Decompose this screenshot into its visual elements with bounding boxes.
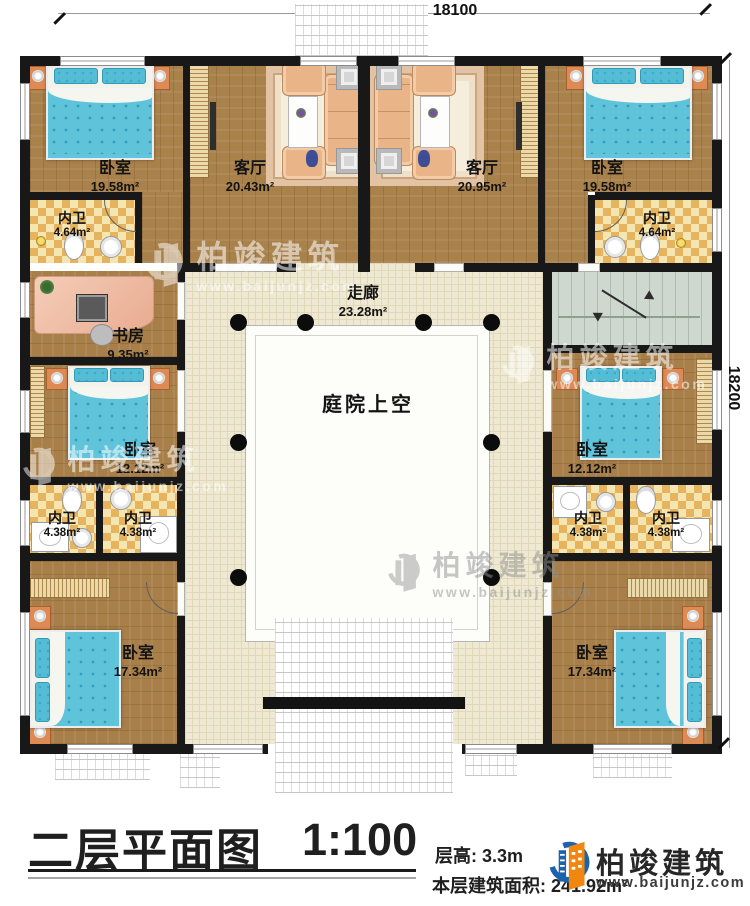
side-table (376, 148, 402, 174)
watermark: 柏竣建筑www.baijunjz.com (497, 336, 707, 392)
pillow (640, 68, 684, 84)
label-bath-left-1: 内卫4.38m² (44, 510, 80, 540)
sink (596, 492, 616, 512)
brand-website: www.baijunjz.com (596, 875, 745, 891)
pillow (102, 68, 146, 84)
window (712, 370, 722, 430)
coffee-table (420, 96, 450, 148)
wall-corridor-left-b (177, 320, 185, 370)
window (583, 56, 661, 66)
window (593, 744, 672, 754)
wall-rbath-divider (623, 485, 630, 553)
column (415, 314, 432, 331)
label-bedroom-bottom-left: 卧室17.34m² (114, 645, 162, 679)
wardrobe (30, 578, 110, 598)
wall-tr-bedroom-left (538, 62, 545, 272)
label-bedroom-top-left: 卧室19.58m² (91, 160, 139, 194)
wall-study-bottom (27, 357, 177, 365)
bed-top-left (46, 66, 154, 160)
tv-left (210, 102, 216, 150)
label-living-left: 客厅20.43m² (226, 160, 274, 194)
pillow (35, 682, 50, 722)
label-bath-right-1: 内卫4.38m² (570, 510, 606, 540)
title-underline-1 (28, 869, 416, 872)
nightstand (28, 66, 48, 90)
window (20, 390, 30, 433)
coffee-table (288, 96, 318, 148)
nightstand (148, 368, 170, 390)
label-bath-left-2: 内卫4.38m² (120, 510, 156, 540)
roof-hatch-bottom-left (55, 754, 150, 780)
bed-bottom-right (614, 630, 706, 728)
label-bedroom-mid-right: 卧室12.12m² (568, 442, 616, 476)
watermark-logo-icon (497, 340, 535, 388)
column (297, 314, 314, 331)
window (20, 500, 30, 546)
pillow (74, 368, 108, 382)
window (20, 282, 30, 318)
pillow (110, 368, 144, 382)
table-flowers (296, 108, 306, 118)
bed-bottom-left (29, 630, 121, 728)
stair-handrail (558, 316, 700, 318)
wall-rbed-bottom (551, 477, 712, 485)
nightstand (29, 606, 51, 630)
door-threshold (177, 582, 185, 616)
wall-stair-top-2 (600, 263, 712, 272)
wall-lbath-bottom (27, 553, 177, 561)
wardrobe (627, 578, 709, 598)
computer-monitor (76, 294, 108, 322)
label-bedroom-bottom-right: 卧室17.34m² (568, 645, 616, 679)
column (230, 434, 247, 451)
label-living-right: 客厅20.95m² (458, 160, 506, 194)
wall-living-divider (358, 56, 370, 272)
nightstand (682, 606, 704, 630)
dimension-right-value: 18200 (724, 358, 742, 418)
title-underline-2 (28, 877, 416, 879)
wardrobe (30, 366, 45, 438)
label-courtyard: 庭院上空 (322, 394, 414, 418)
watermark-logo-icon (140, 237, 184, 291)
sink (100, 236, 122, 258)
label-bedroom-top-right: 卧室19.58m² (583, 160, 631, 194)
table-flowers (428, 108, 438, 118)
plant (40, 280, 54, 294)
window (20, 83, 30, 140)
sink (604, 236, 626, 258)
wall-corridor-top-4 (464, 263, 545, 272)
watermark: 柏竣建筑www.baijunjz.com (383, 544, 593, 600)
nightstand (46, 368, 68, 390)
wall-tr-bath-left (588, 195, 595, 263)
bed-sheet-fold (666, 632, 680, 726)
label-bath-top-right: 内卫4.64m² (639, 210, 675, 240)
sofa-single (412, 62, 456, 96)
pillow (35, 638, 50, 678)
floor-lamp (676, 238, 686, 248)
person-figure (418, 150, 430, 167)
terrace-railing (263, 697, 465, 709)
label-bath-top-left: 内卫4.64m² (54, 210, 90, 240)
window (712, 612, 722, 716)
window (193, 744, 263, 754)
window (712, 83, 722, 140)
person-figure (306, 150, 318, 167)
door-threshold (177, 370, 185, 432)
brand-logo (543, 836, 591, 899)
watermark-logo-icon (383, 548, 421, 596)
column (230, 314, 247, 331)
pillow (592, 68, 636, 84)
roof-hatch-bottom-left-2 (180, 754, 220, 788)
wardrobe (188, 64, 209, 178)
window (712, 208, 722, 252)
floor-plan-page: 18100 18200 (0, 0, 750, 906)
column (483, 314, 500, 331)
label-study: 书房9.35m² (107, 328, 148, 362)
nightstand (566, 66, 586, 90)
column (230, 569, 247, 586)
label-bath-right-2: 内卫4.38m² (648, 510, 684, 540)
side-table (376, 64, 402, 90)
sofa-single (282, 62, 326, 96)
window (300, 56, 357, 66)
pillow (687, 638, 702, 678)
bed-sheet-fold (51, 632, 65, 726)
window (712, 500, 722, 546)
column (483, 434, 500, 451)
wall-corridor-right-c (543, 616, 552, 744)
door-threshold (434, 263, 464, 272)
tv-right (516, 102, 522, 150)
roof-hatch-bottom-right-2 (465, 754, 517, 776)
dimension-top-value: 18100 (405, 2, 505, 20)
sofa-single (282, 146, 326, 180)
door-threshold (578, 263, 600, 272)
bed-top-right (584, 66, 692, 160)
window (398, 56, 455, 66)
floor-height: 层高: 3.3m (435, 842, 523, 868)
window (60, 56, 145, 66)
window (67, 744, 133, 754)
watermark: 柏竣建筑www.baijunjz.com (18, 438, 228, 494)
pillow (54, 68, 98, 84)
window (465, 744, 517, 754)
brand-logo-icon (543, 836, 591, 894)
wall-corridor-left-d (177, 616, 185, 744)
wall-lbath-divider (96, 485, 103, 553)
watermark-logo-icon (18, 442, 56, 490)
floor-lamp (36, 236, 46, 246)
window (20, 612, 30, 716)
pillow (687, 682, 702, 722)
roof-hatch-bottom-right (593, 754, 672, 778)
plan-scale: 1:100 (302, 814, 417, 866)
watermark: 柏竣建筑www.baijunjz.com (140, 232, 357, 296)
wall-corridor-top-3 (415, 263, 434, 272)
vestibule-top-right-floor (545, 192, 588, 263)
